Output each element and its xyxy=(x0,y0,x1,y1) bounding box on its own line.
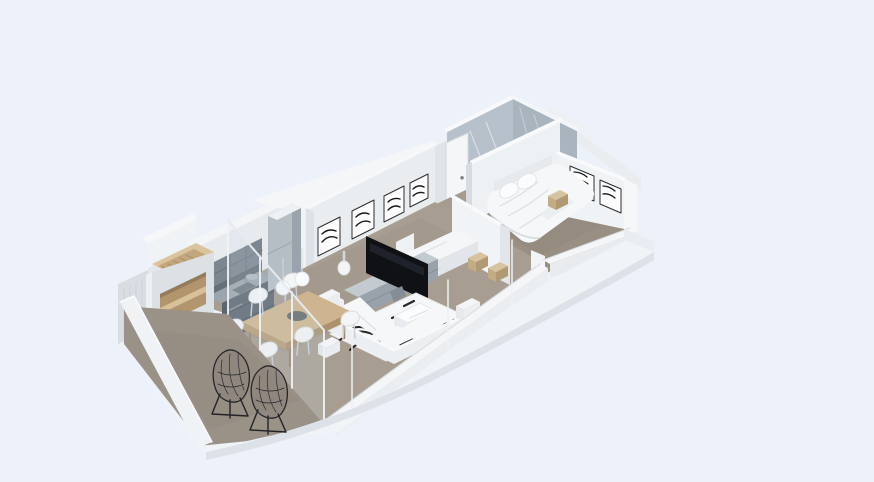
floorplan-svg xyxy=(0,0,874,482)
wire-chair-2-shell xyxy=(251,366,287,418)
bedroom-right-wall-end xyxy=(624,179,637,235)
pendant-lamp-2 xyxy=(295,272,309,286)
hall-door-handle xyxy=(460,176,464,180)
wire-chair-1-shell xyxy=(213,350,249,402)
sculpture-vase xyxy=(338,261,350,275)
floorplan-figure xyxy=(0,0,874,482)
